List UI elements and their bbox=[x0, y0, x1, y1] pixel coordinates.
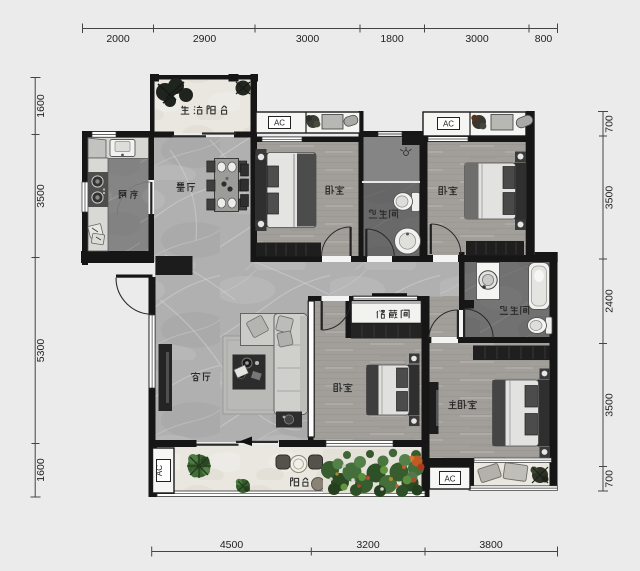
svg-text:800: 800 bbox=[535, 33, 553, 45]
svg-text:1800: 1800 bbox=[380, 33, 404, 45]
svg-text:3500: 3500 bbox=[604, 186, 616, 210]
svg-text:700: 700 bbox=[604, 115, 616, 133]
svg-text:2900: 2900 bbox=[193, 33, 217, 45]
svg-text:AC: AC bbox=[274, 119, 285, 128]
svg-text:3500: 3500 bbox=[604, 393, 616, 417]
svg-text:AC: AC bbox=[155, 465, 164, 476]
svg-text:3200: 3200 bbox=[356, 539, 380, 551]
svg-text:AC: AC bbox=[443, 120, 454, 129]
svg-text:3000: 3000 bbox=[296, 33, 320, 45]
svg-text:3500: 3500 bbox=[35, 184, 47, 208]
svg-text:4500: 4500 bbox=[220, 539, 244, 551]
svg-text:2400: 2400 bbox=[604, 289, 616, 313]
svg-text:3000: 3000 bbox=[465, 33, 489, 45]
svg-text:AC: AC bbox=[444, 475, 455, 484]
svg-text:3800: 3800 bbox=[479, 539, 503, 551]
svg-text:700: 700 bbox=[604, 470, 616, 488]
svg-text:5300: 5300 bbox=[35, 339, 47, 363]
svg-text:1600: 1600 bbox=[35, 458, 47, 482]
svg-text:1600: 1600 bbox=[35, 94, 47, 118]
svg-text:2000: 2000 bbox=[106, 33, 130, 45]
